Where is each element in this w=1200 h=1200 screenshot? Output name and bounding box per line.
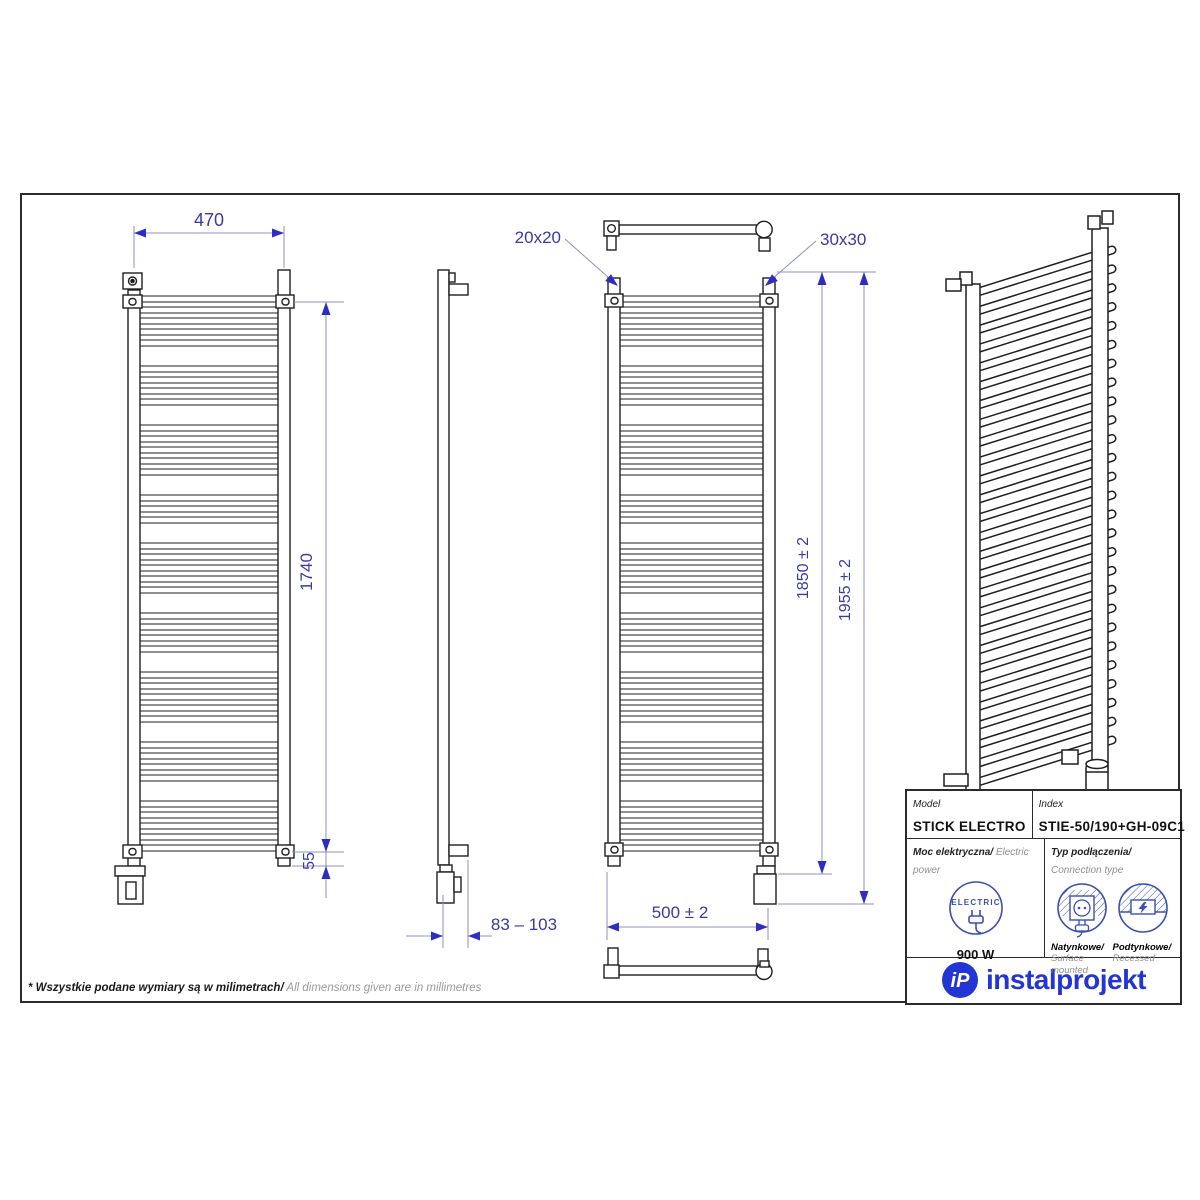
model-label: Model	[913, 799, 940, 810]
electric-power-cell: Moc elektryczna/ Electric power ELECTRIC	[907, 839, 1045, 957]
electric-power-icon: ELECTRIC	[944, 880, 1008, 942]
footnote-pl: * Wszystkie podane wymiary są w milimetr…	[28, 982, 284, 994]
recessed-label: Podtynkowe/ Recessed	[1113, 942, 1175, 976]
power-value: 900 W	[913, 947, 1038, 962]
recessed-icon	[1115, 882, 1171, 940]
model-value: STICK ELECTRO	[913, 819, 1026, 834]
surface-label-pl: Natynkowe/	[1051, 942, 1104, 953]
footnote: * Wszystkie podane wymiary są w milimetr…	[28, 982, 481, 994]
connection-label-pl: Typ podłączenia/	[1051, 847, 1131, 858]
logo-monogram: iP	[951, 970, 971, 992]
drawing-sheet: 470 1740 55 83 – 103	[0, 0, 1200, 1200]
power-label-pl: Moc elektryczna/	[913, 847, 993, 858]
index-label: Index	[1039, 799, 1063, 810]
surface-mounted-icon	[1054, 882, 1110, 940]
spec-table: Model STICK ELECTRO Index STIE-50/190+GH…	[905, 789, 1182, 1005]
model-cell: Model STICK ELECTRO	[907, 791, 1033, 838]
instalprojekt-logo-icon: iP	[941, 961, 979, 999]
connection-label-en: Connection type	[1051, 865, 1123, 876]
footnote-en: All dimensions given are in millimetres	[284, 982, 482, 994]
surface-label-en: Surface mounted	[1051, 953, 1088, 975]
recessed-label-pl: Podtynkowe/	[1113, 942, 1172, 953]
index-cell: Index STIE-50/190+GH-09C1	[1033, 791, 1191, 838]
recessed-label-en: Recessed	[1113, 953, 1155, 964]
electric-badge-text: ELECTRIC	[951, 898, 1001, 907]
connection-type-cell: Typ podłączenia/ Connection type	[1045, 839, 1180, 957]
index-value: STIE-50/190+GH-09C1	[1039, 819, 1185, 834]
surface-mounted-label: Natynkowe/ Surface mounted	[1051, 942, 1113, 976]
